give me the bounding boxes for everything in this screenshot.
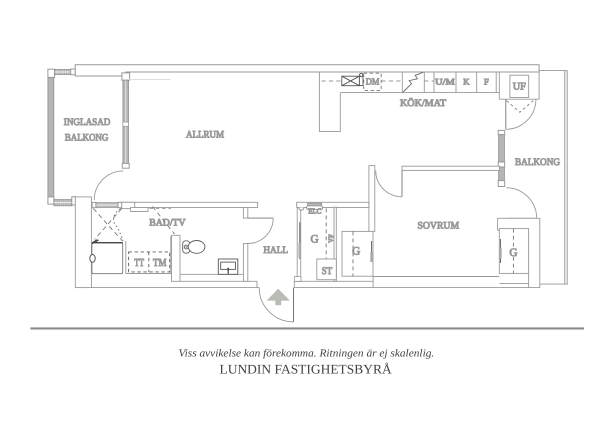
svg-text:G: G <box>310 234 318 246</box>
svg-text:DM: DM <box>366 78 380 88</box>
svg-text:BALKONG: BALKONG <box>515 157 560 168</box>
svg-text:ST: ST <box>322 266 333 277</box>
svg-text:ALLRUM: ALLRUM <box>186 130 224 141</box>
svg-text:TM: TM <box>153 257 167 269</box>
svg-text:F: F <box>484 77 489 87</box>
svg-text:LUNDIN FASTIGHETSBYRÅ: LUNDIN FASTIGHETSBYRÅ <box>220 361 393 376</box>
svg-text:INGLASAD: INGLASAD <box>64 117 111 128</box>
svg-text:TT: TT <box>134 257 144 269</box>
svg-text:G: G <box>509 247 517 259</box>
svg-text:BALKONG: BALKONG <box>65 133 109 144</box>
svg-text:HALL: HALL <box>263 245 288 256</box>
svg-text:KÖK/MAT: KÖK/MAT <box>400 98 446 109</box>
svg-text:G: G <box>352 246 360 258</box>
svg-text:U/M: U/M <box>435 76 455 86</box>
svg-text:SOVRUM: SOVRUM <box>418 221 460 232</box>
svg-text:UF: UF <box>513 81 526 92</box>
svg-text:BAD/TV: BAD/TV <box>149 218 186 229</box>
svg-text:K: K <box>463 77 470 87</box>
svg-text:Viss avvikelse kan förekomma.: Viss avvikelse kan förekomma. Ritningen … <box>179 347 435 359</box>
svg-text:ELC: ELC <box>308 207 321 216</box>
